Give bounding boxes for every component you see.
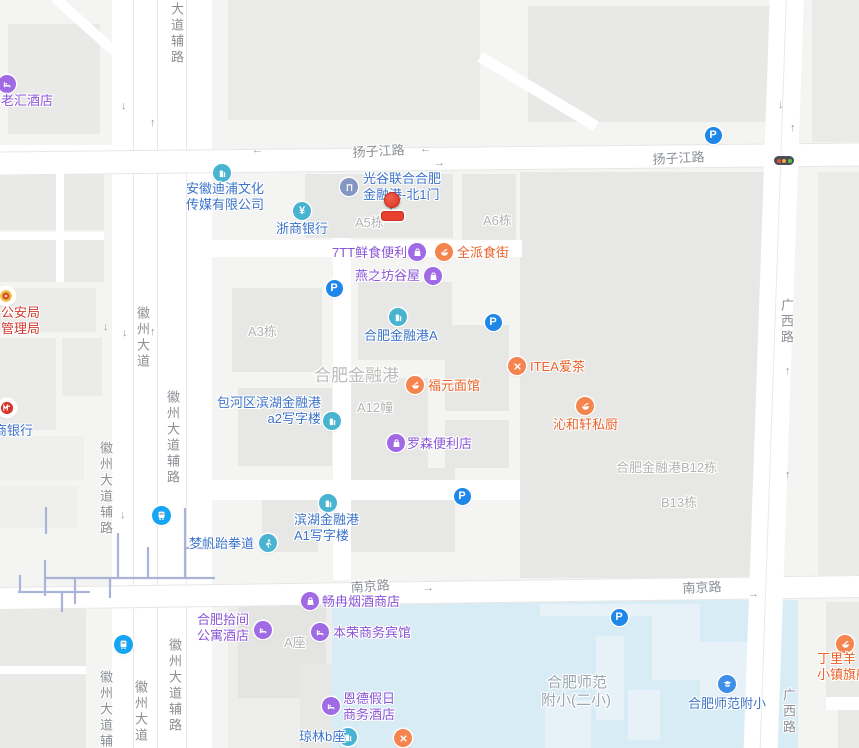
poi-label: 滨湖金融港A1写字楼 <box>294 512 359 544</box>
poi-label: 燕之坊谷屋 <box>355 268 420 284</box>
street <box>56 168 64 282</box>
road-label: 广西路 <box>779 688 798 736</box>
road-direction-arrow: ↑ <box>785 365 791 377</box>
city-block <box>0 486 78 528</box>
poi-label: 合肥师范附小 <box>688 696 766 712</box>
road-direction-arrow: ↑ <box>785 469 791 481</box>
road-direction-arrow: ↑ <box>150 326 156 338</box>
road-direction-arrow: ↓ <box>122 327 128 339</box>
school-building <box>628 690 660 740</box>
parking-icon[interactable]: P <box>454 488 471 505</box>
campus-building <box>462 174 516 240</box>
road-label: 徽州大道辅路 <box>165 638 184 734</box>
road-label: 扬子江路 <box>352 139 405 161</box>
poi-label: 商银行 <box>0 423 33 439</box>
poi-label: 老汇酒店 <box>1 93 53 109</box>
city-block <box>838 710 859 748</box>
lane-divider <box>133 0 134 748</box>
school-building <box>652 616 700 680</box>
road-direction-arrow: ↓ <box>103 321 109 333</box>
poi-label: 恩德假日商务酒店 <box>343 691 395 723</box>
area-label: 附小(二小) <box>541 689 611 710</box>
road-direction-arrow: ← <box>252 144 263 156</box>
bag-icon[interactable] <box>387 434 405 452</box>
poi-label: 包河区滨湖金融港a2写字楼 <box>217 395 321 427</box>
road-direction-arrow: → <box>423 582 434 594</box>
building-icon[interactable] <box>323 412 341 430</box>
poi-label: 福元面馆 <box>428 378 480 394</box>
area-label: 合肥金融港B12栋 <box>616 457 717 476</box>
parking-icon[interactable]: P <box>611 609 628 626</box>
bag-icon[interactable] <box>424 267 442 285</box>
campus-building <box>445 325 509 411</box>
road-direction-arrow: → <box>434 157 445 169</box>
building-icon[interactable] <box>389 308 407 326</box>
campus-street <box>212 480 520 500</box>
poi-label: 畅冉烟酒商店 <box>322 594 400 610</box>
area-label: 合肥金融港 <box>314 361 399 386</box>
poi-label: 合肥拾间公寓酒店 <box>197 612 249 644</box>
road-label: 徽州大道 <box>133 306 152 370</box>
city-block <box>0 168 104 230</box>
person-icon[interactable] <box>259 534 277 552</box>
hotel-icon[interactable] <box>254 621 272 639</box>
area-label: A3栋 <box>248 321 277 340</box>
lane-divider <box>157 0 158 748</box>
poi-label: ITEA爱茶 <box>530 359 585 375</box>
bag-icon[interactable] <box>408 243 426 261</box>
bag-icon[interactable] <box>301 592 319 610</box>
hotel-icon[interactable] <box>311 623 329 641</box>
poi-label: 合肥金融港A <box>364 328 438 344</box>
utensils-icon[interactable] <box>508 357 526 375</box>
poi-label: 浙商银行 <box>276 221 328 237</box>
road-direction-arrow: ↓ <box>778 99 784 111</box>
poi-label: 安徽迪浦文化传媒有限公司 <box>186 181 264 213</box>
city-block <box>0 674 86 748</box>
food-icon[interactable] <box>435 243 453 261</box>
parking-icon[interactable]: P <box>485 314 502 331</box>
road-label: 徽州大道 <box>131 680 150 744</box>
poi-label: 丁里羊小镇旗舰 <box>817 651 859 683</box>
road-label: 扬子江路 <box>652 146 705 168</box>
city-block <box>62 338 102 396</box>
city-block <box>0 608 86 666</box>
road-label: 大道辅路 <box>167 2 186 66</box>
marker-ball <box>384 192 400 208</box>
city-block <box>0 236 104 282</box>
area-label: A座 <box>284 632 306 651</box>
road-label: 南京路 <box>682 576 722 597</box>
poi-label: 光谷联合合肥金融港-北1门 <box>363 171 441 203</box>
bus-icon[interactable] <box>152 506 171 525</box>
area-label: A5栋 <box>355 212 384 231</box>
road-direction-arrow: ↓ <box>120 509 126 521</box>
poi-label: 本荣商务宾馆 <box>333 625 411 641</box>
parking-icon[interactable]: P <box>326 280 343 297</box>
area-label: A6栋 <box>483 210 512 229</box>
poi-label: 梦帆跆拳道 <box>189 536 254 552</box>
street <box>0 232 104 240</box>
area-label: B13栋 <box>661 492 697 511</box>
parking-icon[interactable]: P <box>705 127 722 144</box>
building-icon[interactable] <box>319 494 337 512</box>
city-block <box>228 0 480 120</box>
street <box>826 697 859 710</box>
yen-icon[interactable]: ¥ <box>293 202 311 220</box>
utensils-icon[interactable] <box>394 729 412 747</box>
road-direction-arrow: → <box>748 588 759 600</box>
road-label: 徽州大道辅路 <box>96 441 115 537</box>
map-canvas[interactable]: 大道辅路扬子江路扬子江路徽州大道徽州大道辅路徽州大道辅路南京路南京路徽州大道辅路… <box>0 0 859 748</box>
city-block <box>8 24 100 134</box>
road-direction-arrow: ← <box>420 143 431 155</box>
food-icon[interactable] <box>576 397 594 415</box>
poi-label: 公安局管理局 <box>1 305 40 337</box>
city-block <box>812 0 859 142</box>
poi-label: 沁和轩私厨 <box>553 417 618 433</box>
poi-label: 全派食街 <box>457 245 509 261</box>
hotel-icon[interactable] <box>322 697 340 715</box>
poi-label: 罗森便利店 <box>407 436 472 452</box>
food-icon[interactable] <box>406 376 424 394</box>
campus-building <box>232 288 322 372</box>
bus-icon[interactable] <box>114 635 133 654</box>
road-direction-arrow: ↓ <box>121 100 127 112</box>
campus-block-b12 <box>520 172 770 578</box>
cmb-bank-icon[interactable] <box>0 399 16 417</box>
road-label: 广西路 <box>777 298 796 346</box>
lane-divider <box>186 0 187 748</box>
street <box>0 666 86 674</box>
city-block <box>0 436 84 480</box>
poi-label: 琼林b座 <box>299 729 345 745</box>
road-label: 南京路 <box>350 574 390 596</box>
area-label: A12幢 <box>357 397 393 416</box>
road-direction-arrow: ↑ <box>150 117 156 129</box>
school-icon[interactable] <box>718 675 736 693</box>
traffic-light-icon[interactable] <box>774 156 794 165</box>
door-icon[interactable] <box>340 178 358 196</box>
city-block <box>818 172 859 578</box>
road-label: 徽州大道辅路 <box>96 670 115 748</box>
road-label: 徽州大道辅路 <box>163 390 182 486</box>
poi-label: 7TT鲜食便利 <box>332 245 407 261</box>
road-direction-arrow: ↑ <box>790 122 796 134</box>
marker-bar <box>381 211 404 221</box>
building-icon[interactable] <box>213 164 231 182</box>
police-badge-icon[interactable] <box>0 287 15 305</box>
